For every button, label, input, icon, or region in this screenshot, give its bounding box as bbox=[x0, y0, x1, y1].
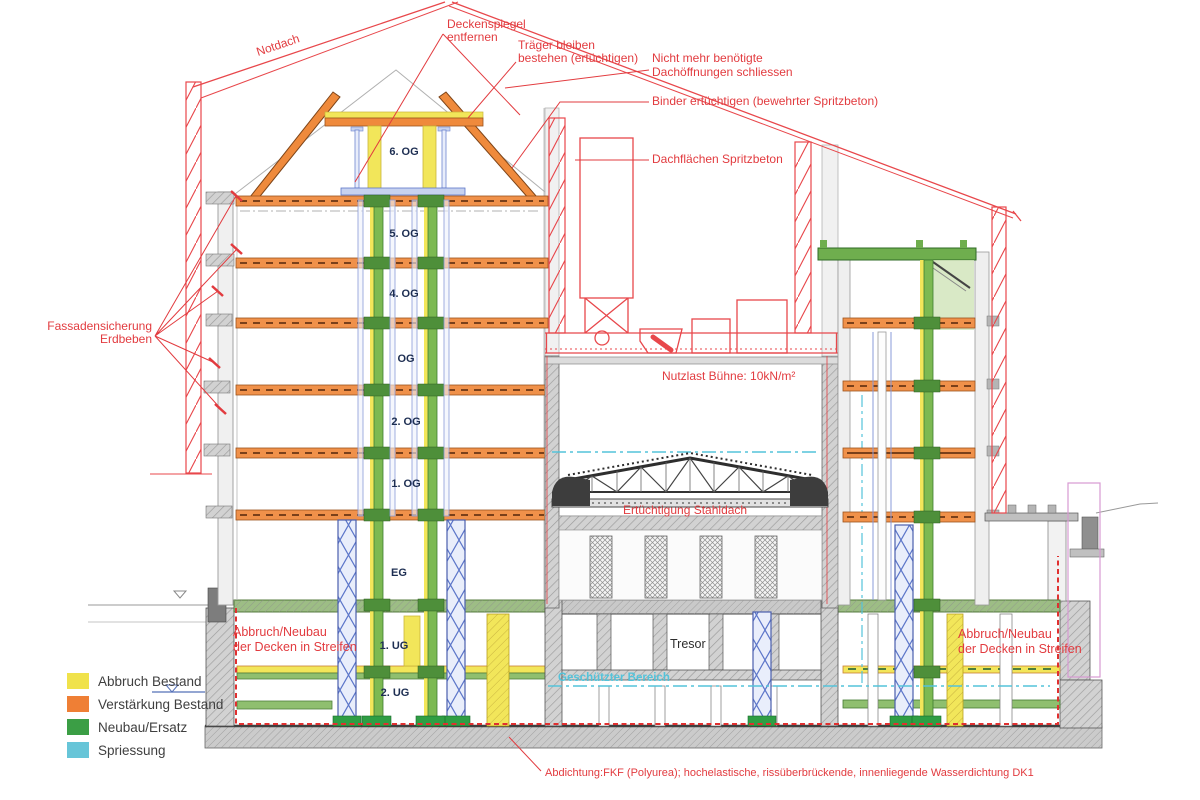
floor-label-2og: 2. OG bbox=[391, 416, 420, 428]
equipment-box bbox=[692, 319, 730, 353]
label-dachoeffnungen-2: Dachöffnungen schliessen bbox=[652, 65, 793, 79]
floor-label-og: OG bbox=[397, 353, 414, 365]
floor-label-5og: 5. OG bbox=[389, 228, 418, 240]
legend-swatch-verstaerkung bbox=[67, 696, 89, 712]
architectural-section-page: Notdach Deckenspiegel entfernen Träger b… bbox=[0, 0, 1200, 800]
shoring-tower bbox=[338, 520, 356, 725]
legend-label-neubau: Neubau/Ersatz bbox=[98, 720, 188, 735]
label-abbruch-rechts-1: Abbruch/Neubau bbox=[958, 627, 1052, 641]
label-abdichtung: Abdichtung:FKF (Polyurea); hochelastisch… bbox=[545, 767, 1034, 779]
label-geschuetzter-bereich: Geschützter Bereich bbox=[558, 672, 670, 684]
water-table-icon bbox=[174, 591, 186, 598]
shoring-tower bbox=[447, 520, 465, 725]
legend-swatch-spriessung bbox=[67, 742, 89, 758]
legend-label-verstaerkung: Verstärkung Bestand bbox=[98, 697, 223, 712]
label-nutzlast: Nutzlast Bühne: 10kN/m² bbox=[662, 369, 795, 383]
label-traeger-2: bestehen (ertüchtigen) bbox=[518, 51, 638, 65]
building-section-drawing: Notdach Deckenspiegel entfernen Träger b… bbox=[0, 0, 1200, 800]
label-binder: Binder ertüchtigen (bewehrter Spritzbeto… bbox=[652, 94, 878, 108]
footing-pads bbox=[333, 716, 941, 726]
label-fassadensicherung-1: Fassadensicherung bbox=[47, 319, 152, 333]
label-abbruch-links-1: Abbruch/Neubau bbox=[233, 625, 327, 639]
label-dachoeffnungen-1: Nicht mehr benötigte bbox=[652, 51, 763, 65]
label-abbruch-links-2: der Decken in Streifen bbox=[233, 640, 357, 654]
legend-label-spriessung: Spriessung bbox=[98, 743, 166, 758]
window bbox=[700, 536, 722, 598]
shoring-tower bbox=[753, 612, 771, 725]
label-deckenspiegel-2: entfernen bbox=[447, 30, 498, 44]
window bbox=[590, 536, 612, 598]
red-lattice-tower bbox=[549, 118, 565, 333]
label-abbruch-rechts-2: der Decken in Streifen bbox=[958, 642, 1082, 656]
steel-roof-truss bbox=[552, 453, 828, 507]
label-deckenspiegel-1: Deckenspiegel bbox=[447, 17, 526, 31]
label-stahldach: Ertüchtigung Stahldach bbox=[623, 503, 747, 517]
legend-swatch-neubau bbox=[67, 719, 89, 735]
floor-label-2ug: 2. UG bbox=[381, 687, 410, 699]
hall-window-wall bbox=[559, 516, 822, 600]
floor-label-6og: 6. OG bbox=[389, 146, 418, 158]
floor-label-eg: EG bbox=[391, 567, 407, 579]
floor-label-1ug: 1. UG bbox=[380, 640, 409, 652]
label-fassadensicherung-2: Erdbeben bbox=[100, 332, 152, 346]
tresor-vault bbox=[545, 600, 838, 726]
attic-structure bbox=[235, 70, 545, 200]
equipment-box bbox=[737, 300, 787, 353]
work-platform-and-equipment bbox=[545, 138, 838, 353]
label-dachflaechen: Dachflächen Spritzbeton bbox=[652, 152, 783, 166]
red-lattice-tower bbox=[795, 142, 811, 333]
label-notdach: Notdach bbox=[255, 31, 302, 58]
floor-label-4og: 4. OG bbox=[389, 288, 418, 300]
window bbox=[645, 536, 667, 598]
rafter-left bbox=[250, 92, 340, 200]
floor-label-1og: 1. OG bbox=[391, 478, 420, 490]
legend: Abbruch Bestand Verstärkung Bestand Neub… bbox=[67, 673, 223, 758]
legend-swatch-abbruch bbox=[67, 673, 89, 689]
silo bbox=[580, 138, 633, 298]
steel-prop bbox=[442, 130, 446, 188]
right-floor-slabs bbox=[843, 318, 975, 522]
legend-label-abbruch: Abbruch Bestand bbox=[98, 674, 202, 689]
label-traeger-1: Träger bleiben bbox=[518, 38, 595, 52]
scaffold-tower-left bbox=[186, 82, 201, 473]
label-tresor: Tresor bbox=[670, 637, 706, 651]
rafter-right bbox=[439, 92, 537, 200]
window bbox=[755, 536, 777, 598]
shoring-tower bbox=[895, 525, 913, 725]
new-roof-slab bbox=[818, 248, 976, 260]
scaffold-tower-right bbox=[992, 207, 1006, 513]
